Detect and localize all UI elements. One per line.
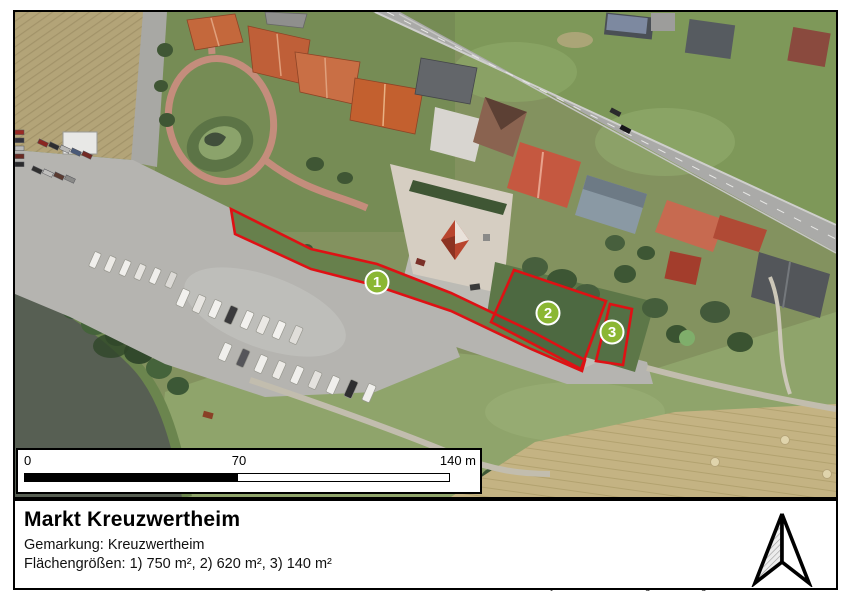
marker-3-label: 3	[608, 324, 616, 341]
map-title: Markt Kreuzwertheim	[24, 508, 836, 532]
page: { "map": { "markers": [ { "number": "1" …	[0, 0, 850, 601]
marker-3: 3	[601, 321, 624, 344]
marker-1: 1	[366, 271, 389, 294]
scale-bar: 0 70 140 m	[16, 448, 482, 494]
marker-2: 2	[537, 302, 560, 325]
gemarkung-line: Gemarkung: Kreuzwertheim	[24, 537, 836, 553]
scale-bar-track	[24, 473, 450, 482]
marker-1-label: 1	[373, 274, 381, 291]
areas-line: Flächengrößen: 1) 750 m², 2) 620 m², 3) …	[24, 556, 836, 572]
marker-2-label: 2	[544, 305, 552, 322]
aerial-photo: 1 2 3	[15, 12, 836, 497]
scale-tick-middle: 70	[232, 453, 246, 468]
north-arrow-icon	[751, 511, 813, 587]
map-frame: 1 2 3	[13, 10, 838, 499]
scale-bar-filled-segment	[25, 474, 238, 481]
scale-tick-end: 140 m	[440, 453, 476, 468]
title-block: Markt Kreuzwertheim Gemarkung: Kreuzwert…	[13, 499, 838, 590]
scale-tick-start: 0	[24, 453, 31, 468]
